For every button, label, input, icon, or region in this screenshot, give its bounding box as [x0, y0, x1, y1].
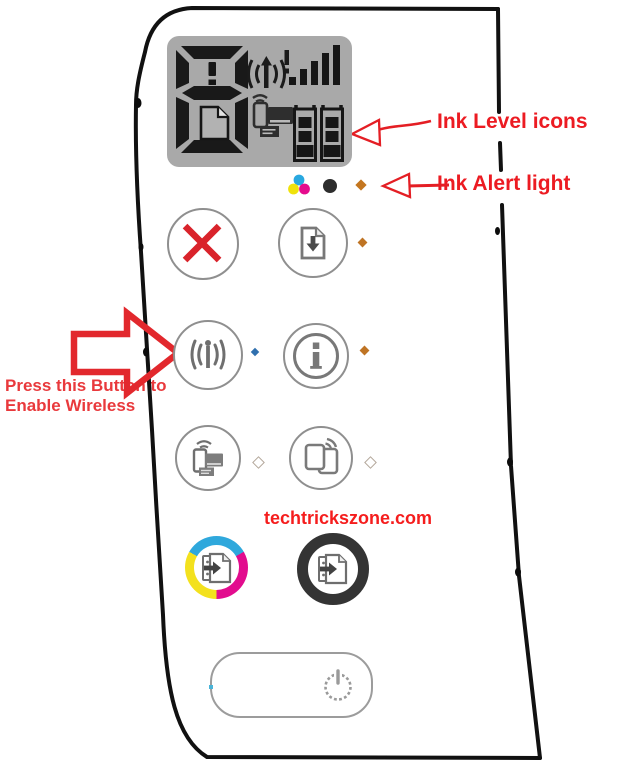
- power-light: [209, 685, 213, 689]
- power-icon: [320, 669, 356, 705]
- resume-document-icon: [293, 223, 333, 263]
- tri-color-dots-icon: [287, 173, 311, 197]
- error-exclamation-icon: [209, 62, 217, 85]
- page-icon: [201, 107, 228, 139]
- wifi-direct-button[interactable]: [175, 425, 241, 491]
- color-copy-button[interactable]: [185, 536, 248, 599]
- power-button[interactable]: [210, 652, 373, 718]
- wireless-alert-icon: [249, 50, 290, 88]
- cancel-button[interactable]: [167, 208, 239, 280]
- info-button[interactable]: [283, 323, 349, 389]
- printer-panel-diagram: { "annotations": { "ink_level_label": "I…: [0, 0, 626, 772]
- wifi-direct-devices-icon: [253, 95, 293, 137]
- color-copy-face: [194, 545, 239, 590]
- panel-outline-right: [502, 205, 540, 758]
- panel-outline-right: [498, 9, 499, 112]
- panel-outline-right: [500, 143, 501, 170]
- signal-bars-icon: [289, 45, 340, 85]
- black-ink-dot-icon: [323, 179, 337, 193]
- black-ink-level-icon: [322, 105, 343, 161]
- cancel-x-icon: [169, 208, 237, 280]
- resume-button[interactable]: [278, 208, 348, 278]
- black-copy-button[interactable]: [297, 533, 369, 605]
- ink-alert-arrow-icon: [383, 174, 449, 197]
- wireless-antenna-icon: [186, 333, 230, 377]
- mobile-print-button[interactable]: [289, 426, 353, 490]
- copy-document-icon: [199, 550, 235, 586]
- wireless-pointer-arrow-icon: [74, 313, 178, 393]
- wireless-button[interactable]: [173, 320, 243, 390]
- lcd-glyphs: [167, 36, 352, 167]
- devices-wifi-icon: [187, 437, 229, 479]
- copy-document-icon: [315, 551, 351, 587]
- ink-level-arrow-icon: [352, 120, 431, 145]
- color-ink-level-icon: [295, 105, 316, 161]
- information-icon: [289, 329, 343, 383]
- lcd-display: [167, 36, 352, 167]
- sheet-wifi-icon: [300, 437, 342, 479]
